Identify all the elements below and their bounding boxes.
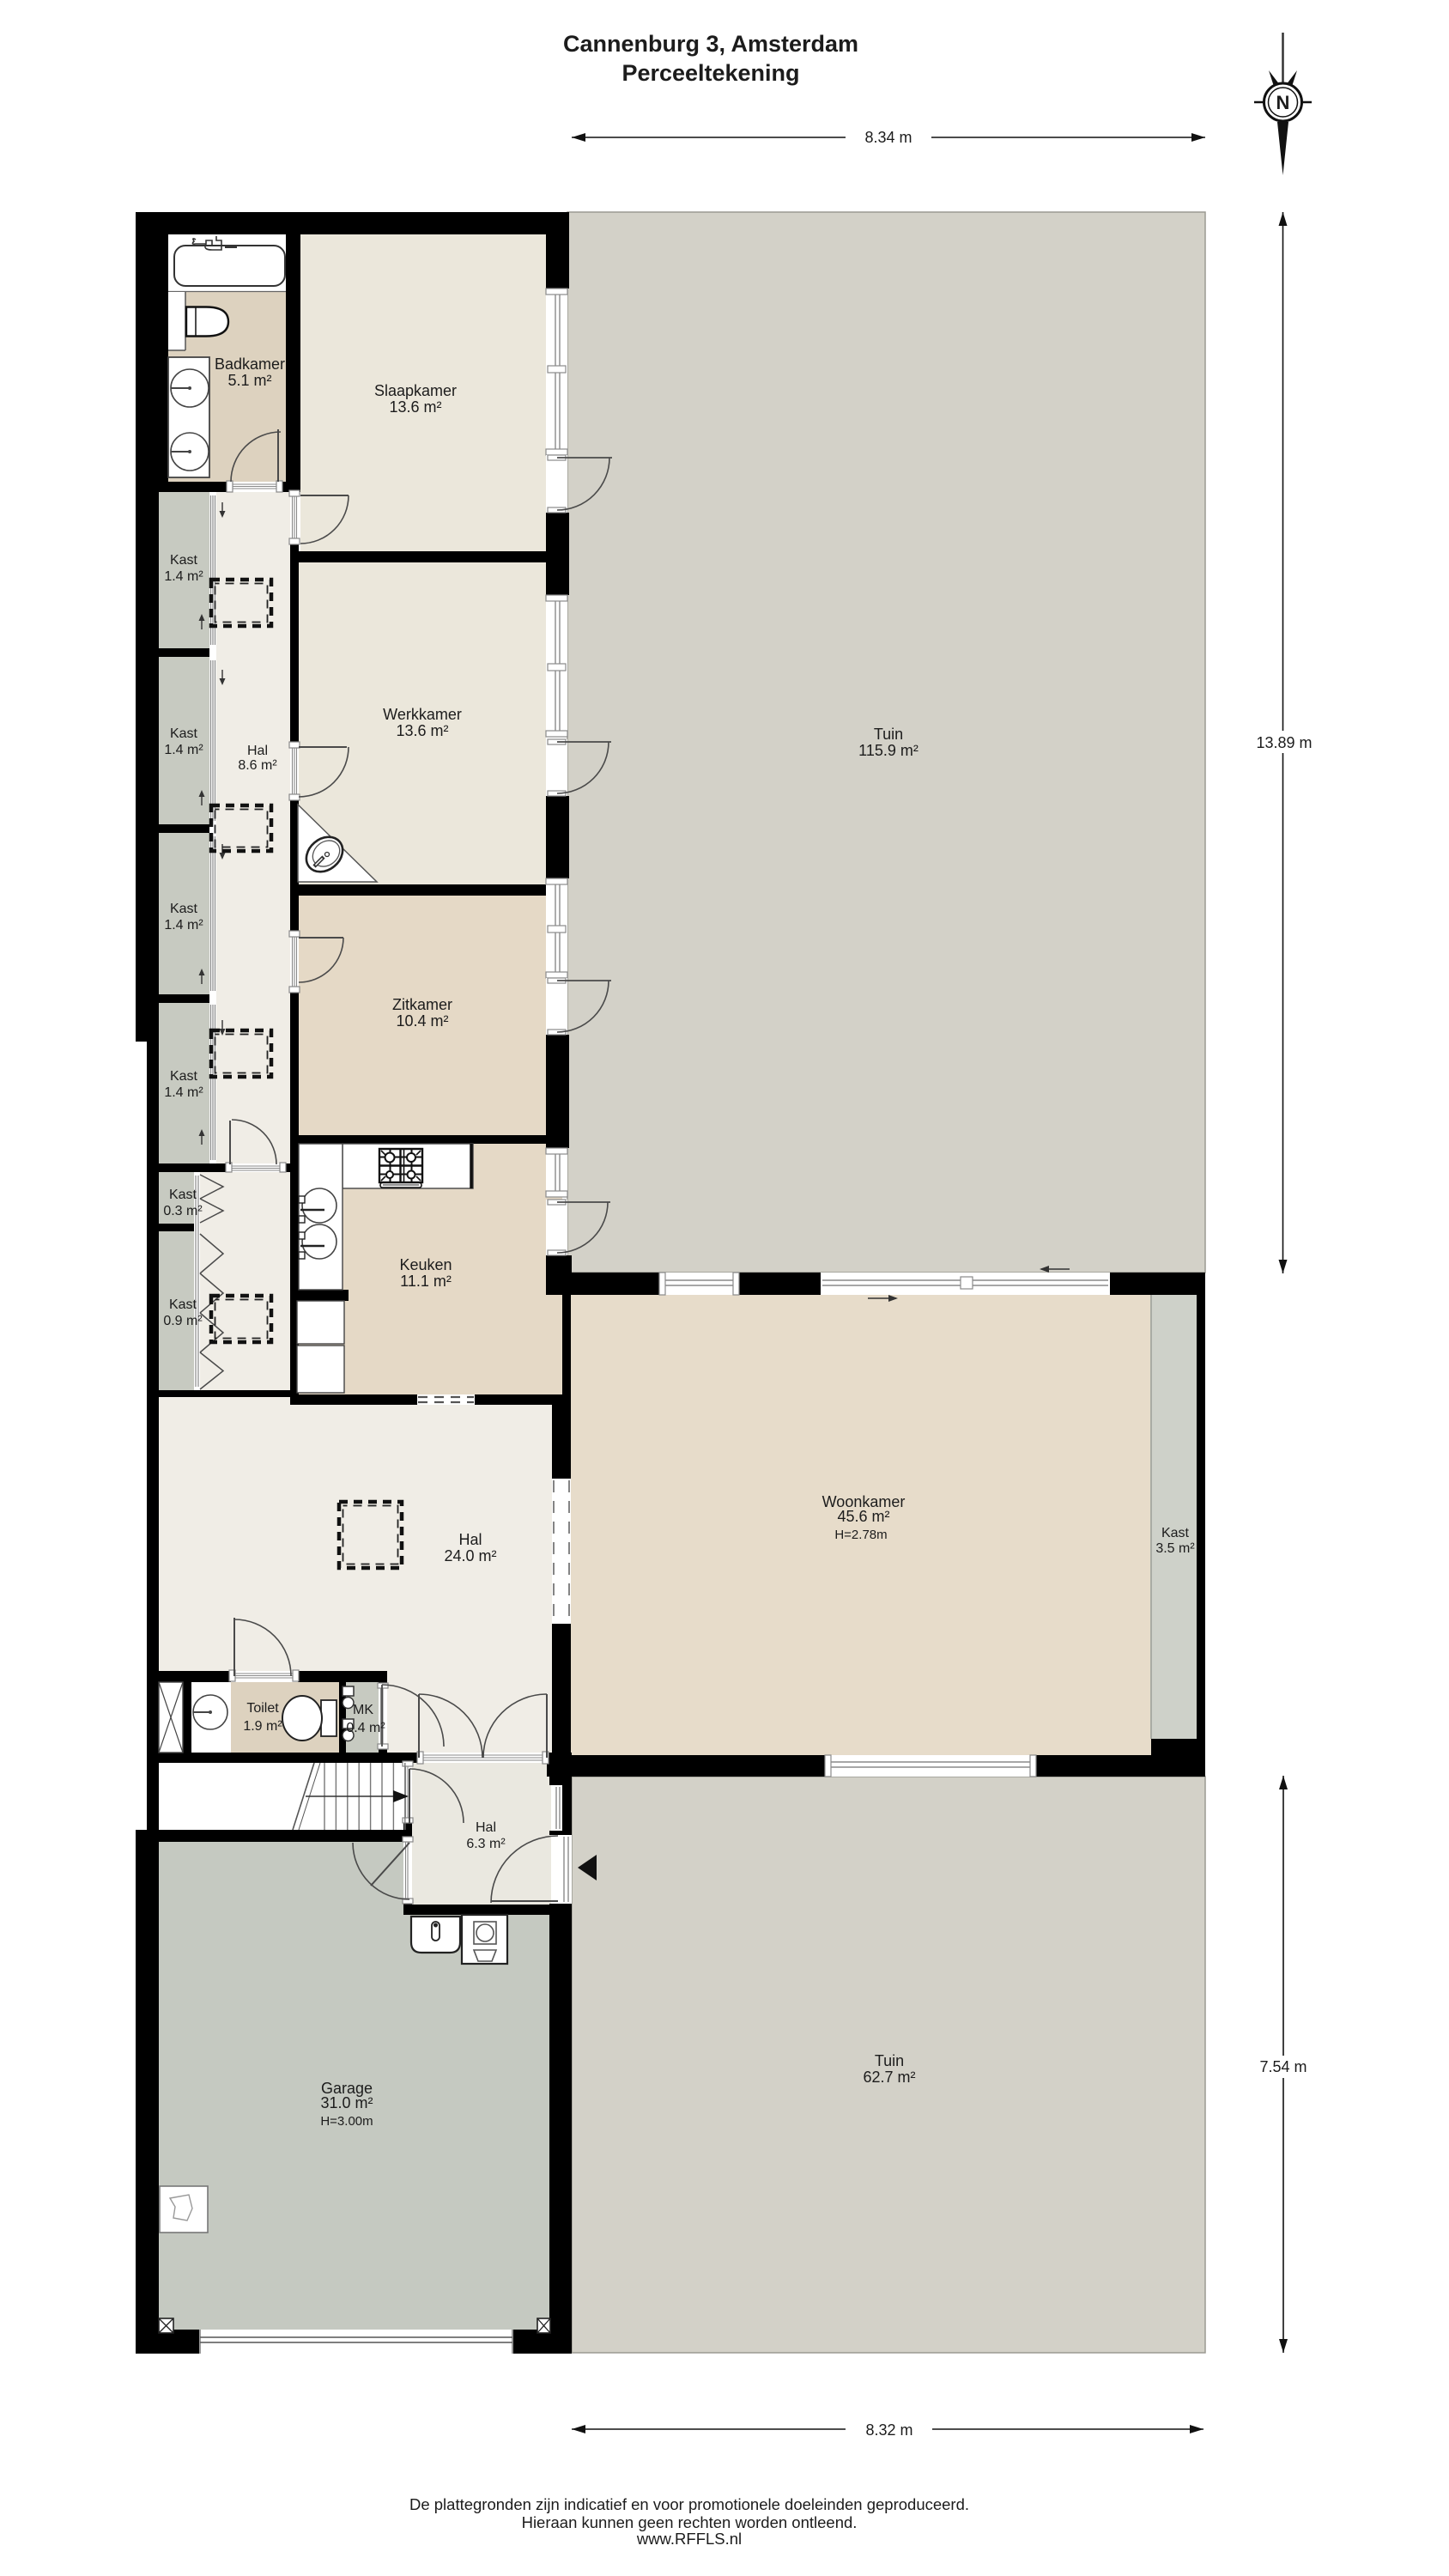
svg-text:13.6 m²: 13.6 m² [389,398,441,416]
svg-text:7.54 m: 7.54 m [1259,2058,1307,2075]
svg-text:N: N [1276,92,1290,113]
svg-text:1.4 m²: 1.4 m² [164,743,203,757]
svg-text:Kast: Kast [169,1297,197,1312]
svg-text:Badkamer: Badkamer [215,355,285,373]
svg-text:Tuin: Tuin [874,726,903,743]
svg-text:Toilet: Toilet [246,1701,279,1716]
svg-text:8.34 m: 8.34 m [864,129,912,146]
svg-text:13.6 m²: 13.6 m² [396,722,448,739]
svg-text:0.9 m²: 0.9 m² [163,1314,203,1328]
svg-text:Perceeltekening: Perceeltekening [621,60,799,86]
svg-text:www.RFFLS.nl: www.RFFLS.nl [636,2530,742,2548]
svg-text:H=3.00m: H=3.00m [320,2114,373,2129]
svg-text:Kast: Kast [1161,1526,1190,1540]
svg-text:Hieraan kunnen geen rechten wo: Hieraan kunnen geen rechten worden ontle… [522,2513,858,2531]
svg-text:Zitkamer: Zitkamer [392,996,452,1013]
svg-text:31.0 m²: 31.0 m² [320,2094,373,2111]
svg-text:Werkkamer: Werkkamer [383,706,462,723]
svg-text:0.3 m²: 0.3 m² [163,1204,203,1218]
svg-text:13.89 m: 13.89 m [1256,734,1312,751]
svg-text:Kast: Kast [170,1069,198,1084]
svg-text:6.3 m²: 6.3 m² [466,1837,506,1851]
svg-text:H=2.78m: H=2.78m [834,1528,887,1542]
svg-text:10.4 m²: 10.4 m² [396,1012,448,1030]
svg-text:Keuken: Keuken [399,1256,452,1273]
svg-text:115.9 m²: 115.9 m² [858,742,919,759]
svg-text:Slaapkamer: Slaapkamer [374,382,457,399]
svg-text:MK: MK [353,1703,373,1717]
svg-text:1.4 m²: 1.4 m² [164,918,203,933]
svg-text:Kast: Kast [170,726,198,741]
svg-text:Kast: Kast [169,1188,197,1202]
svg-text:3.5 m²: 3.5 m² [1155,1541,1195,1556]
svg-text:Kast: Kast [170,902,198,916]
svg-text:1.4 m²: 1.4 m² [164,1085,203,1100]
svg-text:Hal: Hal [458,1531,482,1548]
svg-text:1.9 m²: 1.9 m² [243,1719,282,1734]
svg-text:24.0 m²: 24.0 m² [444,1547,496,1564]
svg-text:1.4 m²: 1.4 m² [164,569,203,584]
svg-text:De plattegronden zijn indicati: De plattegronden zijn indicatief en voor… [409,2495,969,2513]
svg-text:45.6 m²: 45.6 m² [837,1508,889,1525]
svg-text:62.7 m²: 62.7 m² [863,2069,915,2086]
svg-text:5.1 m²: 5.1 m² [227,372,271,389]
svg-text:Tuin: Tuin [875,2052,904,2069]
svg-text:Hal: Hal [247,744,268,758]
svg-text:Hal: Hal [476,1820,496,1835]
svg-text:11.1 m²: 11.1 m² [400,1273,452,1290]
svg-text:0.4 m²: 0.4 m² [346,1721,385,1735]
svg-text:Cannenburg 3, Amsterdam: Cannenburg 3, Amsterdam [563,31,858,57]
svg-text:8.6 m²: 8.6 m² [238,758,277,773]
svg-text:8.32 m: 8.32 m [865,2421,912,2439]
svg-text:Kast: Kast [170,553,198,568]
